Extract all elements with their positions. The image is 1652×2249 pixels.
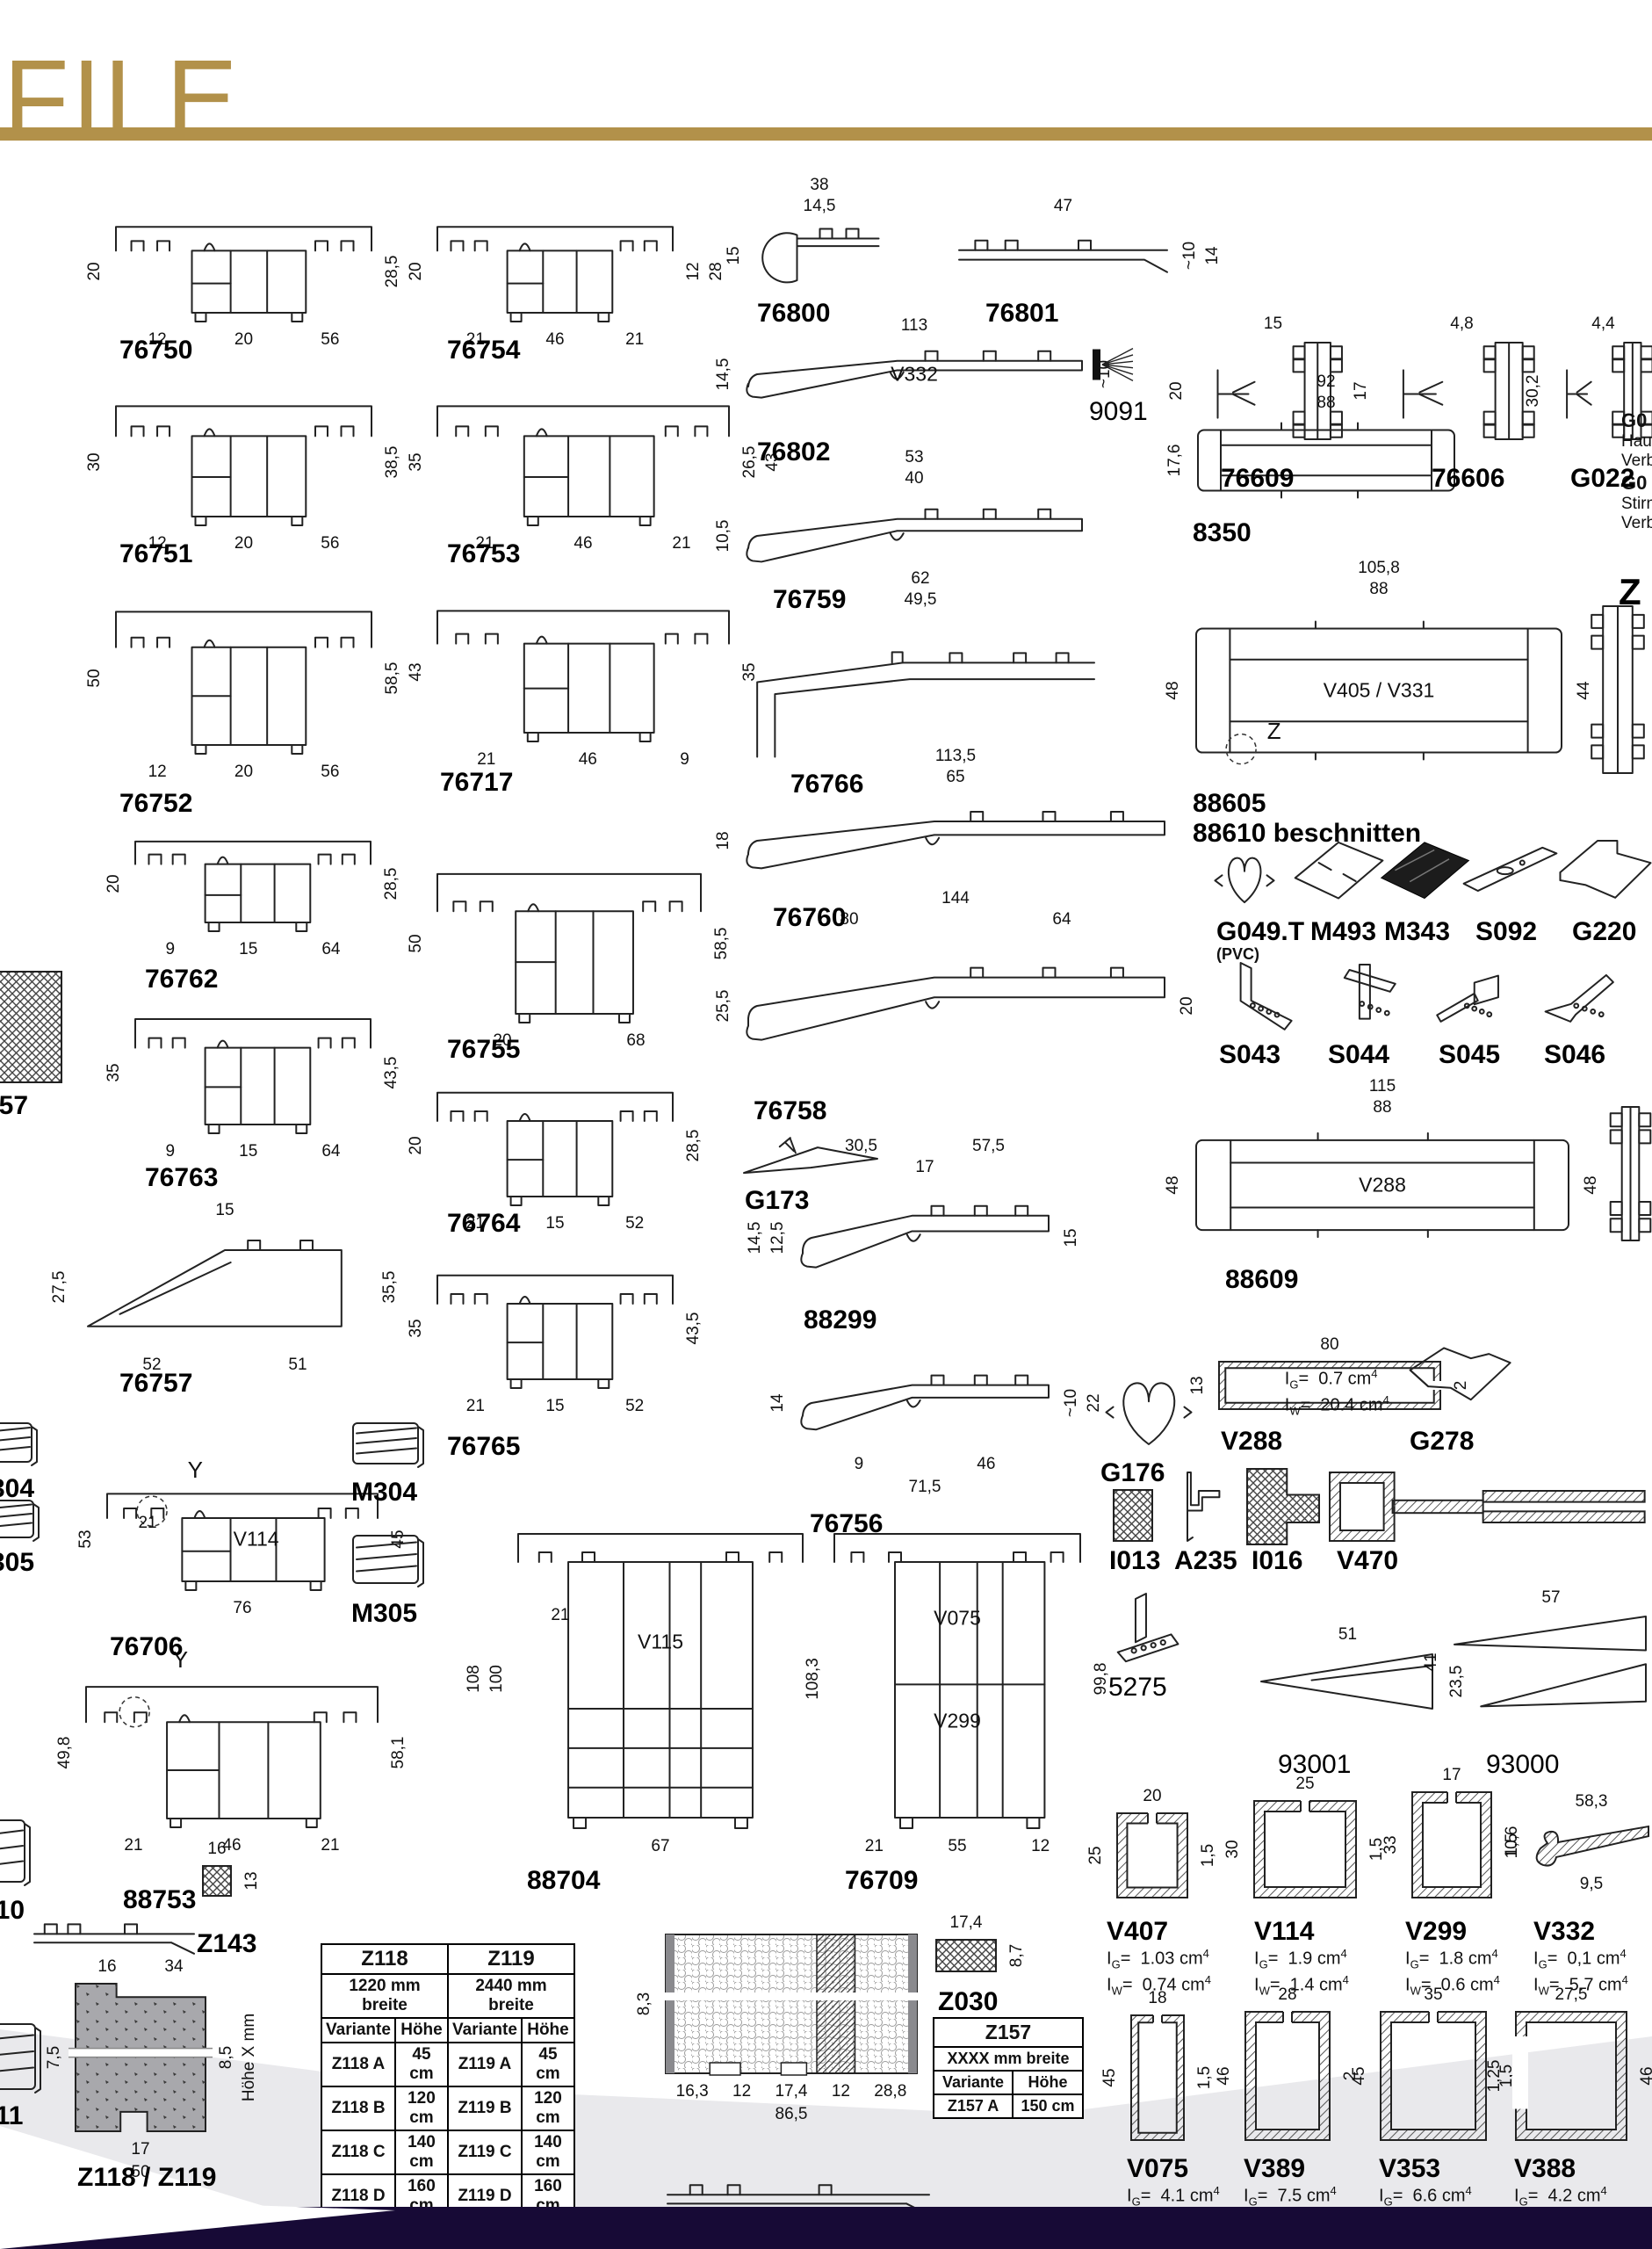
- profile-76757: 15525127,535,5: [79, 1226, 371, 1349]
- dimension-label: 88: [1317, 394, 1335, 413]
- profile-M305: [350, 1529, 425, 1592]
- part-number-label: G220: [1572, 917, 1636, 947]
- ig-value: IG= 0.7 cm4: [1285, 1367, 1389, 1393]
- part-number-label: 76752: [119, 789, 192, 819]
- profile-88753: 21462149,858,1Y: [84, 1676, 379, 1829]
- dimension-label: 20: [105, 874, 124, 893]
- profile-code-label: V288: [1359, 1174, 1406, 1197]
- profile-057: [0, 970, 63, 1084]
- profile-V388: 27,51,254046: [1514, 2010, 1628, 2142]
- dimension-label: 51: [1338, 1625, 1357, 1645]
- table-row: Z118 A45 cmZ119 A45 cm: [321, 2043, 574, 2086]
- part-number-label: V407: [1107, 1917, 1168, 1947]
- dimension-label: 46: [977, 1455, 995, 1474]
- dimension-label: 43: [407, 662, 426, 681]
- part-number-label: M304: [0, 1474, 34, 1504]
- dimension-label: 51: [288, 1356, 307, 1375]
- table-header: Z157: [934, 2018, 1083, 2047]
- dimension-label: 17,4: [950, 1913, 983, 1933]
- profile-drawing: [1175, 1467, 1224, 1546]
- dimension-label: 9: [166, 940, 176, 959]
- profile-drawing: [350, 1416, 425, 1472]
- dimension-row: 17: [1410, 1766, 1493, 1785]
- dimension-row: 47: [956, 197, 1171, 216]
- dimension-label: 12: [832, 2082, 850, 2101]
- table-column-header: Variante: [448, 2018, 522, 2043]
- part-number-label: 76757: [119, 1369, 192, 1399]
- dimension-label: 27,5: [50, 1271, 69, 1304]
- dimension-label: 15: [215, 1201, 234, 1220]
- profile-88704: 6710810021V115: [516, 1527, 804, 1830]
- dimension-label: 8,3: [635, 1992, 654, 2015]
- dimension-label: 17,4: [775, 2082, 807, 2101]
- dimension-label: 14,5: [746, 1222, 765, 1255]
- profile-9091: [1087, 344, 1136, 385]
- table-cell: 45 cm: [395, 2043, 448, 2086]
- dimension-label: 46: [1215, 2066, 1234, 2085]
- part-number-label: 9091: [1089, 397, 1148, 427]
- ig-value: IG= 1.8 cm4: [1405, 1947, 1500, 1973]
- dimension-row: 4,8: [1381, 315, 1543, 334]
- profile-code-label: V299: [934, 1709, 981, 1732]
- profile-V075: 18451,5: [1129, 2014, 1186, 2142]
- dimension-label: 21: [625, 330, 644, 350]
- profile-76758: 144806425,520: [743, 935, 1168, 1077]
- profile-drawing: [743, 935, 1168, 1077]
- part-number-label: V075: [1127, 2154, 1188, 2184]
- dimension-row: 115: [1193, 1077, 1572, 1096]
- profile-drawing: [743, 494, 1086, 578]
- dimension-row: 21469: [436, 750, 731, 770]
- dimension-label: 20: [1167, 381, 1187, 400]
- profile-M304: [350, 1416, 425, 1472]
- dimension-label: 52: [625, 1397, 644, 1416]
- profile-drawing: [0, 2017, 42, 2098]
- table-cell: 45 cm: [522, 2043, 574, 2086]
- dimension-label: 30,5: [845, 1137, 877, 1156]
- profile-88609: 115884848V288: [1193, 1123, 1572, 1247]
- dimension-label: 14: [768, 1393, 788, 1412]
- profile-M304: [0, 1416, 39, 1471]
- dimension-label: 144: [941, 889, 970, 908]
- profile-V114: 25301,5: [1252, 1799, 1358, 1899]
- table-cell: 140 cm: [395, 2130, 448, 2174]
- dimension-row: 30,557,5: [797, 1137, 1052, 1156]
- profile-S044: [1324, 956, 1408, 1033]
- dimension-label: 20: [1143, 1787, 1161, 1806]
- profile-drawing: [1115, 1811, 1189, 1899]
- profile-drawing: [436, 397, 731, 527]
- dimension-row: 91564: [133, 1142, 372, 1161]
- inertia-values: IG= 1.9 cm4IW= 1.4 cm4: [1254, 1947, 1349, 1999]
- profile-drawing: [114, 601, 373, 756]
- profile-panel: 16,31217,41228,886,58,3: [664, 1933, 919, 2075]
- part-number-label: 76706: [110, 1632, 183, 1662]
- dimension-label: 64: [321, 940, 340, 959]
- dimension-row: 1634: [74, 1957, 207, 1977]
- dimension-row: 58,3: [1532, 1792, 1651, 1811]
- dimension-label: 113: [901, 316, 927, 336]
- dimension-label: 14: [1203, 246, 1223, 264]
- dimension-label: 67: [651, 1837, 669, 1856]
- dimension-label: 46: [579, 750, 597, 770]
- dimension-row: 88: [1194, 394, 1458, 413]
- profile-drawing: [664, 1933, 919, 2075]
- table-column-header: Höhe: [395, 2018, 448, 2043]
- part-number-label: 310: [0, 1896, 25, 1926]
- table-cell: 150 cm: [1013, 2094, 1083, 2118]
- dimension-label: 12,5: [768, 1222, 788, 1255]
- ig-value: IG= 1.9 cm4: [1254, 1947, 1349, 1973]
- profile-drawing: [1216, 958, 1297, 1035]
- profile-76802: 11314,5~10V332: [743, 341, 1086, 408]
- profile-76755: 20685058,5: [436, 863, 703, 1024]
- profile-S092: [1460, 839, 1561, 911]
- catalog-page: FILE 1220562028,576750214621202812767541…: [0, 0, 1652, 2249]
- part-number-label: V299: [1405, 1917, 1467, 1947]
- dimension-label: 17: [915, 1158, 934, 1177]
- edge-text-line: Hau: [1621, 432, 1652, 452]
- dimension-row: 38: [754, 176, 885, 195]
- part-number-label: 76800: [757, 299, 830, 329]
- catalog-content: 1220562028,57675021462120281276754122056…: [0, 0, 1652, 2249]
- part-number-label: 76756: [810, 1509, 883, 1539]
- profile-drawing: [934, 1938, 998, 1973]
- dimension-label: 15: [545, 1214, 564, 1233]
- part-number-label: V353: [1379, 2154, 1440, 2184]
- dimension-label: 53: [905, 448, 923, 467]
- profile-code-label: V075: [934, 1606, 981, 1630]
- profile-drawing: [956, 221, 1171, 290]
- dimension-row: 67: [516, 1837, 804, 1856]
- part-number-label: Z030: [938, 1987, 998, 2017]
- part-number-label: S092: [1475, 917, 1537, 947]
- dimension-label: 113,5: [935, 747, 976, 766]
- part-number-label: 76717: [440, 768, 513, 798]
- dimension-label: 21: [477, 750, 495, 770]
- dimension-label: 15: [239, 940, 257, 959]
- dimension-label: 25,5: [714, 990, 733, 1023]
- dimension-row: 20: [1115, 1787, 1189, 1806]
- table-column-header: Höhe: [522, 2018, 574, 2043]
- dimension-label: 35: [105, 1063, 124, 1081]
- dimension-label: 14,5: [804, 197, 836, 216]
- profile-76762: 915642028,5: [133, 835, 372, 933]
- dimension-label: 4,4: [1591, 315, 1614, 334]
- profile-drawing: [1112, 1488, 1154, 1543]
- dimension-label: 17: [1442, 1766, 1461, 1785]
- dimension-label: 21: [865, 1837, 884, 1856]
- part-number-label: 76763: [145, 1163, 218, 1193]
- dimension-label: 21: [551, 1606, 569, 1625]
- profile-drawing: [1403, 1341, 1516, 1414]
- table-cell: Z157 A: [934, 2094, 1013, 2118]
- dimension-label: 43,5: [382, 1057, 401, 1089]
- table-cell: Z119 C: [448, 2130, 522, 2174]
- part-number-label: G278: [1410, 1427, 1474, 1457]
- profile-drawing: [1328, 1467, 1651, 1546]
- dimension-label: 28,5: [382, 868, 401, 900]
- iw-value: IW= 5.7 cm4: [1533, 1973, 1628, 2000]
- part-number-label: V288: [1221, 1427, 1282, 1457]
- dimension-label: 30: [1223, 1840, 1243, 1858]
- table-column-header: Variante: [934, 2071, 1013, 2094]
- dimension-label: 16: [207, 1840, 226, 1859]
- table-cell: Z119 B: [448, 2086, 522, 2130]
- part-number-label: 88299: [804, 1305, 876, 1335]
- profile-drawing: [436, 1084, 675, 1207]
- dimension-row: 92: [1194, 372, 1458, 392]
- part-number-label: S044: [1328, 1040, 1389, 1070]
- profile-76765: 2115523543,5: [436, 1267, 675, 1390]
- dimension-label: 15: [725, 246, 744, 264]
- part-number-label: 76759: [773, 585, 846, 615]
- part-number-label: 76765: [447, 1432, 520, 1462]
- ig-value: IG= 1.03 cm4: [1107, 1947, 1211, 1973]
- profile-drawing: [0, 1813, 32, 1891]
- part-number-label: S043: [1219, 1040, 1280, 1070]
- profile-drawing: [436, 863, 703, 1024]
- profile-drawing: [1108, 1378, 1189, 1448]
- dimension-label: 56: [321, 330, 339, 350]
- dimension-label: 22: [1085, 1393, 1104, 1412]
- profile-drawing: [350, 1529, 425, 1592]
- profile-drawing: [1609, 1103, 1652, 1244]
- dimension-label: 46: [574, 534, 592, 553]
- dimension-row: 105,8: [1193, 559, 1565, 578]
- part-number-label: 76755: [447, 1035, 520, 1065]
- dimension-label: 108: [465, 1665, 484, 1693]
- profile-76709: 215512108,399,8V075V299: [833, 1527, 1082, 1830]
- profile-drawing: [1556, 833, 1652, 912]
- profile-drawing: [1460, 839, 1561, 911]
- dimension-label: Höhe X mm: [240, 2014, 259, 2101]
- dimension-label: 56: [321, 763, 339, 782]
- dimension-row: 91564: [133, 940, 372, 959]
- profile-drawing: [1244, 2010, 1331, 2142]
- dimension-label: 58,5: [383, 662, 402, 695]
- dimension-label: 9: [855, 1455, 864, 1474]
- dimension-label: 15: [1062, 1228, 1081, 1247]
- dimension-label: 55: [948, 1837, 966, 1856]
- dimension-label: 20: [234, 534, 253, 553]
- profile-76754: 214621202812: [436, 220, 675, 323]
- dimension-label: 20: [234, 330, 253, 350]
- profile-V353: 35451,5: [1379, 2010, 1488, 2142]
- profile-88299: 30,557,51714,512,515: [797, 1182, 1052, 1293]
- z118-z119-size-table: Z118Z1191220 mm breite2440 mm breiteVari…: [321, 1943, 575, 2219]
- dimension-row: 17: [74, 2140, 207, 2159]
- profile-V407: 20251,5: [1115, 1811, 1189, 1899]
- part-number-label: 76758: [754, 1096, 826, 1126]
- profile-I016: [1245, 1467, 1321, 1546]
- profile-drawing: [1532, 1817, 1651, 1868]
- dimension-label: 20: [234, 763, 253, 782]
- dimension-label: 18: [714, 831, 733, 850]
- dimension-row: 9,5: [1532, 1875, 1651, 1894]
- dimension-label: 12: [732, 2082, 751, 2101]
- profile-93000: 5741: [1451, 1613, 1651, 1711]
- dimension-label: 48: [1164, 1175, 1183, 1194]
- table-cell: 140 cm: [522, 2130, 574, 2174]
- dimension-label: 68: [626, 1031, 645, 1051]
- profile-drawing: [797, 1358, 1052, 1448]
- profile-76753: 214621354326,5: [436, 397, 731, 527]
- dimension-label: 100: [487, 1665, 507, 1693]
- dimension-label: 13: [1188, 1376, 1208, 1394]
- dimension-label: 47: [1054, 197, 1072, 216]
- dimension-label: 53: [76, 1529, 96, 1548]
- dimension-label: 86,5: [776, 2105, 808, 2124]
- dimension-row: 57: [1451, 1588, 1651, 1608]
- part-number-label: V470: [1337, 1546, 1398, 1576]
- table-subheader: 2440 mm breite: [448, 1974, 574, 2018]
- profile-drawing: [743, 615, 1098, 764]
- dimension-row: 946: [797, 1455, 1052, 1474]
- dimension-label: 58,3: [1576, 1792, 1608, 1811]
- z157-size-table: Z157XXXX mm breiteVarianteHöheZ157 A150 …: [933, 2017, 1084, 2119]
- dimension-row: 15: [1196, 315, 1350, 334]
- profile-code-label: V115: [638, 1631, 683, 1654]
- part-number-label: M304: [351, 1478, 417, 1508]
- dimension-label: 28,8: [874, 2082, 906, 2101]
- dimension-label: 21: [672, 534, 690, 553]
- profile-Z118 / Z119: 163417507,5Höhe X mm8,5: [74, 1982, 207, 2133]
- profile-drawing: [1219, 854, 1270, 905]
- profile-G220: [1556, 833, 1652, 912]
- profile-drawing: [1245, 1467, 1321, 1546]
- profile-drawing: [1451, 1613, 1651, 1711]
- profile-drawing: [114, 397, 373, 527]
- part-number-label: 311: [0, 2101, 23, 2131]
- dimension-row: 113,5: [743, 747, 1168, 766]
- dimension-label: 20: [407, 262, 426, 280]
- dimension-label: 88: [1373, 1098, 1391, 1117]
- part-number-label: M343: [1384, 917, 1450, 947]
- part-number-label: I013: [1109, 1546, 1160, 1576]
- dimension-label: 16,3: [676, 2082, 709, 2101]
- dimension-label: 65: [946, 768, 964, 787]
- profile-code-label: V114: [234, 1528, 279, 1551]
- dimension-label: 21: [321, 1836, 339, 1855]
- dimension-row: 15: [79, 1201, 371, 1220]
- profile-G176: [1108, 1378, 1189, 1448]
- part-number-label: G049.T: [1216, 917, 1304, 947]
- profile-88605: 105,8884844V405 / V331Z: [1193, 604, 1565, 777]
- dimension-label: 76: [233, 1599, 251, 1618]
- dimension-label: 64: [321, 1142, 340, 1161]
- dimension-row: 16,31217,41228,8: [664, 2082, 919, 2101]
- profile-drawing: [74, 1982, 207, 2133]
- dimension-label: 10,6: [1503, 1826, 1522, 1859]
- part-number-label: 5275: [1108, 1673, 1167, 1703]
- table-cell: Z118 C: [321, 2130, 395, 2174]
- part-number-label: M493: [1310, 917, 1376, 947]
- part-number-label: 76606: [1432, 464, 1504, 494]
- profile-G278: [1403, 1341, 1516, 1414]
- profile-311: [0, 2017, 42, 2098]
- dimension-label: 8,5: [217, 2046, 236, 2069]
- profile-drawing: [1105, 1592, 1186, 1669]
- part-number-label: S046: [1544, 1040, 1605, 1070]
- dimension-label: 15: [545, 1397, 564, 1416]
- dimension-row: 17: [797, 1158, 1052, 1177]
- dimension-label: ~10: [1062, 1389, 1081, 1417]
- part-number-label: 88753: [123, 1885, 196, 1915]
- part-number-label: 057: [0, 1091, 28, 1121]
- part-number-label: 76754: [447, 336, 520, 365]
- dimension-label: 15: [1264, 315, 1282, 334]
- dimension-label: 28: [707, 262, 726, 280]
- profile-S045: [1433, 961, 1508, 1033]
- dimension-label: 1,25: [1485, 2060, 1504, 2093]
- profile-76759: 534010,5: [743, 494, 1086, 578]
- part-number-label: I016: [1252, 1546, 1302, 1576]
- dimension-label: 49,8: [55, 1737, 75, 1769]
- annotation-marker: Y: [188, 1457, 203, 1484]
- dimension-label: 46: [545, 330, 564, 350]
- part-number-label: Z143: [197, 1929, 256, 1959]
- profile-drawing: [797, 1182, 1052, 1293]
- dimension-label: 14,5: [714, 358, 733, 391]
- dimension-row: 76: [105, 1599, 379, 1618]
- dimension-label: 57: [1541, 1588, 1560, 1608]
- part-number-label: 88609: [1225, 1265, 1298, 1295]
- table-cell: 120 cm: [522, 2086, 574, 2130]
- dimension-row: 16: [201, 1840, 233, 1859]
- profile-76763: 915643543,5: [133, 1010, 372, 1135]
- profile-drawing: [114, 220, 373, 323]
- profile-drawing: [1129, 2014, 1186, 2142]
- part-number-label: 76760: [773, 903, 846, 933]
- profile-76801: 4714~10: [956, 221, 1171, 290]
- dimension-label: 16: [97, 1957, 116, 1977]
- dimension-label: 8,7: [1007, 1944, 1027, 1967]
- dimension-label: 15: [239, 1142, 257, 1161]
- dimension-label: 12: [1031, 1837, 1050, 1856]
- dimension-label: 35: [407, 452, 426, 471]
- dimension-label: 25: [1086, 1846, 1106, 1864]
- part-number-label: G176: [1100, 1458, 1165, 1488]
- profile-drawing: [1514, 2010, 1628, 2142]
- profile-V332: 58,39,510,62: [1532, 1817, 1651, 1868]
- dimension-label: 105,8: [1358, 559, 1400, 578]
- dimension-label: 12: [148, 763, 167, 782]
- dimension-label: 115: [1369, 1077, 1396, 1096]
- iw-value: IW= 0.6 cm4: [1405, 1973, 1500, 2000]
- part-number-label: G173: [745, 1186, 809, 1216]
- dimension-label: 50: [407, 934, 426, 952]
- profile-drawing: [0, 1416, 39, 1471]
- dimension-label: 21: [138, 1514, 156, 1533]
- profile-76766: 6249,5: [743, 615, 1098, 764]
- part-number-label: 76764: [447, 1209, 520, 1239]
- profile-drawing: [1379, 2010, 1488, 2142]
- dimension-label: 56: [321, 534, 339, 553]
- profile-drawing: [84, 1676, 379, 1829]
- part-number-label: V332: [1533, 1917, 1595, 1947]
- dimension-label: 9: [166, 1142, 176, 1161]
- iw-value: IW= 20.4 cm4: [1285, 1393, 1389, 1420]
- part-number-label: M305: [351, 1599, 417, 1629]
- profile-76760: 113,56518: [743, 792, 1168, 889]
- dimension-label: 71,5: [909, 1478, 941, 1497]
- dimension-label: 50: [85, 669, 105, 687]
- dimension-row: 40: [743, 469, 1086, 488]
- dimension-label: 58,5: [712, 928, 732, 960]
- dimension-label: 92: [1317, 372, 1335, 392]
- annotation-marker: Z: [1267, 718, 1281, 745]
